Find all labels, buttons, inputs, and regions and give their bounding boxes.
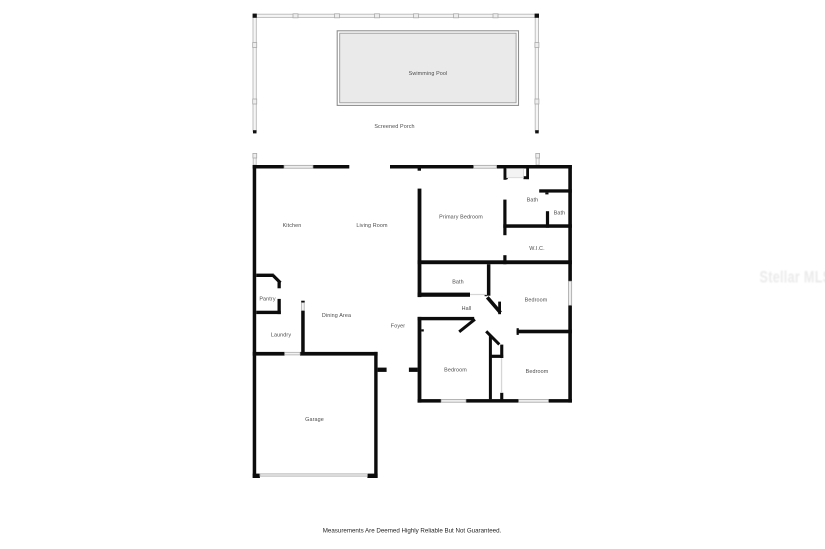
svg-text:Bath: Bath: [452, 280, 464, 286]
svg-text:Garage: Garage: [305, 417, 324, 423]
svg-text:Primary Bedroom: Primary Bedroom: [439, 214, 483, 220]
svg-text:Pantry: Pantry: [259, 296, 275, 302]
svg-text:Screened Porch: Screened Porch: [374, 124, 414, 130]
svg-text:Bedroom: Bedroom: [444, 368, 467, 374]
svg-text:Living Room: Living Room: [356, 223, 388, 229]
svg-text:Hall: Hall: [462, 306, 472, 312]
svg-text:Dining Area: Dining Area: [322, 313, 351, 319]
svg-text:Swimming Pool: Swimming Pool: [409, 71, 448, 77]
svg-text:Bath: Bath: [527, 198, 539, 204]
svg-text:Foyer: Foyer: [391, 323, 405, 329]
svg-text:Bedroom: Bedroom: [525, 298, 548, 304]
svg-text:Bath: Bath: [554, 211, 566, 217]
svg-text:Stellar MLS: Stellar MLS: [760, 269, 825, 287]
svg-text:Kitchen: Kitchen: [283, 223, 302, 229]
svg-text:Bedroom: Bedroom: [526, 369, 549, 375]
svg-text:Measurements Are Deemed Highly: Measurements Are Deemed Highly Reliable …: [323, 528, 502, 535]
svg-text:Laundry: Laundry: [271, 333, 292, 339]
svg-text:W.I.C.: W.I.C.: [529, 246, 544, 252]
